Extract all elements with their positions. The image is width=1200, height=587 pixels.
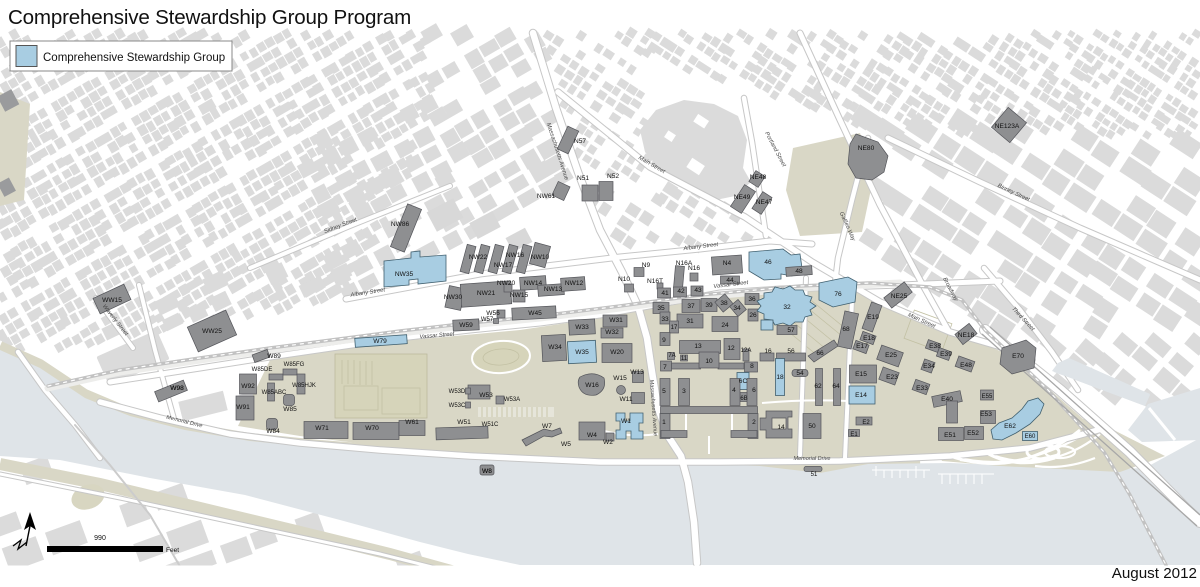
svg-text:37: 37 (687, 303, 695, 310)
svg-text:W4: W4 (587, 432, 597, 439)
svg-text:10: 10 (705, 358, 713, 365)
svg-text:E23: E23 (886, 374, 898, 381)
svg-text:33: 33 (661, 316, 669, 323)
svg-text:W85HJK: W85HJK (292, 383, 316, 389)
svg-text:36: 36 (748, 296, 756, 303)
svg-text:48: 48 (795, 268, 803, 275)
svg-text:Comprehensive Stewardship Grou: Comprehensive Stewardship Group (43, 52, 225, 64)
svg-text:W33: W33 (575, 324, 589, 331)
svg-text:E40: E40 (941, 396, 953, 403)
svg-text:4: 4 (732, 387, 736, 394)
svg-text:W16: W16 (585, 382, 599, 389)
svg-text:N51: N51 (577, 175, 589, 182)
svg-text:Comprehensive Stewardship Grou: Comprehensive Stewardship Group Program (8, 6, 411, 29)
svg-text:W53D: W53D (449, 389, 466, 395)
svg-text:6: 6 (752, 387, 756, 394)
svg-text:N16: N16 (688, 265, 700, 272)
svg-text:E18: E18 (863, 335, 875, 342)
svg-text:W32: W32 (605, 329, 619, 336)
svg-text:N10: N10 (618, 276, 630, 283)
svg-text:50: 50 (808, 423, 816, 430)
svg-text:NW13: NW13 (544, 286, 563, 293)
svg-text:E25: E25 (885, 352, 897, 359)
svg-text:56: 56 (787, 348, 795, 355)
svg-text:64: 64 (832, 383, 840, 390)
svg-text:W15: W15 (613, 375, 627, 382)
svg-text:W79: W79 (373, 338, 387, 345)
svg-text:E33: E33 (916, 385, 928, 392)
svg-text:6B: 6B (740, 396, 747, 402)
svg-text:NE48: NE48 (750, 174, 767, 181)
svg-text:NW17: NW17 (494, 262, 513, 269)
svg-text:31: 31 (686, 318, 694, 325)
svg-text:34: 34 (733, 305, 741, 312)
svg-text:24: 24 (721, 322, 729, 329)
svg-text:NW61: NW61 (537, 193, 556, 200)
svg-text:E38: E38 (929, 343, 941, 350)
svg-text:W35: W35 (575, 349, 589, 356)
svg-text:Feet: Feet (166, 547, 179, 554)
svg-text:W70: W70 (365, 425, 379, 432)
svg-text:W7: W7 (542, 423, 552, 430)
svg-text:E55: E55 (982, 394, 993, 400)
svg-text:Memorial Drive: Memorial Drive (794, 456, 831, 462)
svg-text:W31: W31 (609, 317, 623, 324)
svg-text:12A: 12A (741, 348, 752, 354)
svg-text:W92: W92 (241, 383, 255, 390)
svg-text:W59: W59 (459, 322, 473, 329)
svg-text:NE47: NE47 (756, 199, 773, 206)
svg-text:3: 3 (682, 388, 686, 395)
svg-text:E34: E34 (923, 363, 935, 370)
svg-text:E70: E70 (1012, 353, 1024, 360)
svg-text:W71: W71 (315, 425, 329, 432)
svg-text:N52: N52 (607, 173, 619, 180)
svg-text:August 2012: August 2012 (1112, 565, 1197, 582)
svg-text:W20: W20 (610, 349, 624, 356)
svg-text:38: 38 (720, 300, 728, 307)
svg-text:N9: N9 (642, 262, 651, 269)
svg-text:32: 32 (783, 304, 791, 311)
svg-text:7A: 7A (668, 353, 675, 359)
svg-text:51: 51 (811, 472, 818, 478)
svg-text:E39: E39 (940, 351, 952, 358)
svg-text:NW86: NW86 (391, 221, 410, 228)
svg-text:W2: W2 (603, 439, 613, 446)
svg-text:11: 11 (681, 356, 688, 362)
svg-text:43: 43 (694, 287, 702, 294)
svg-text:E62: E62 (1004, 423, 1016, 430)
svg-text:E1: E1 (850, 432, 858, 438)
svg-text:NW22: NW22 (469, 254, 488, 261)
svg-text:6C: 6C (739, 378, 748, 385)
svg-text:41: 41 (661, 290, 669, 297)
svg-text:NW35: NW35 (395, 271, 414, 278)
svg-text:W85DE: W85DE (252, 367, 273, 373)
svg-text:57: 57 (787, 327, 795, 334)
svg-text:NW10: NW10 (531, 254, 550, 261)
svg-text:N16T: N16T (647, 278, 663, 285)
svg-text:16: 16 (764, 348, 772, 355)
svg-text:46: 46 (764, 259, 772, 266)
svg-text:W5: W5 (561, 441, 571, 448)
svg-text:68: 68 (842, 326, 850, 333)
svg-text:E14: E14 (855, 392, 867, 399)
svg-text:26: 26 (749, 312, 757, 319)
svg-text:2: 2 (752, 419, 756, 426)
svg-text:W53: W53 (479, 392, 493, 399)
svg-text:W98: W98 (170, 385, 184, 392)
svg-text:E2: E2 (862, 420, 870, 426)
svg-text:W91: W91 (236, 404, 250, 411)
svg-text:62: 62 (814, 383, 822, 390)
svg-text:NW15: NW15 (510, 292, 529, 299)
svg-text:1: 1 (662, 419, 666, 426)
svg-text:W56: W56 (486, 310, 500, 317)
svg-text:54: 54 (796, 370, 804, 377)
svg-text:18: 18 (776, 374, 784, 381)
svg-text:NE80: NE80 (858, 145, 875, 152)
svg-text:W89: W89 (267, 353, 281, 360)
svg-text:W53C: W53C (449, 403, 466, 409)
svg-text:E15: E15 (855, 371, 867, 378)
svg-text:5: 5 (662, 388, 666, 395)
svg-text:NW16: NW16 (506, 252, 525, 259)
svg-text:NE49: NE49 (734, 194, 751, 201)
svg-text:8: 8 (750, 363, 754, 370)
svg-text:35: 35 (657, 305, 665, 312)
svg-text:NW12: NW12 (565, 280, 584, 287)
svg-text:W85ABC: W85ABC (262, 390, 287, 396)
svg-text:NW30: NW30 (444, 294, 463, 301)
svg-text:990: 990 (94, 535, 106, 542)
svg-text:NE123A: NE123A (995, 123, 1020, 130)
svg-text:NE18: NE18 (958, 332, 975, 339)
svg-text:W13: W13 (630, 369, 644, 376)
svg-text:W85: W85 (283, 406, 297, 413)
svg-text:E48: E48 (960, 362, 972, 369)
svg-text:W85FG: W85FG (284, 362, 305, 368)
svg-text:9: 9 (662, 337, 666, 344)
svg-text:W34: W34 (548, 344, 562, 351)
svg-text:E53: E53 (980, 411, 992, 418)
svg-text:E51: E51 (944, 432, 956, 439)
svg-text:NW20: NW20 (497, 280, 516, 287)
svg-text:76: 76 (834, 291, 842, 298)
svg-text:13: 13 (694, 343, 702, 350)
svg-text:12: 12 (727, 345, 735, 352)
svg-text:W8: W8 (482, 468, 492, 475)
svg-text:W53A: W53A (504, 397, 520, 403)
svg-text:14: 14 (777, 424, 785, 431)
svg-text:W11: W11 (619, 396, 632, 403)
svg-text:N4: N4 (723, 260, 732, 267)
svg-text:E17: E17 (856, 343, 868, 350)
svg-text:W1: W1 (621, 418, 631, 425)
svg-text:W57: W57 (481, 317, 494, 323)
svg-text:W84: W84 (266, 428, 280, 435)
svg-text:W45: W45 (528, 310, 542, 317)
svg-text:17: 17 (671, 325, 678, 331)
svg-text:NE25: NE25 (891, 293, 908, 300)
svg-text:W51: W51 (457, 419, 471, 426)
svg-text:66: 66 (816, 350, 824, 357)
svg-text:39: 39 (705, 302, 713, 309)
svg-text:42: 42 (677, 288, 685, 295)
svg-text:N57: N57 (574, 138, 586, 145)
svg-text:E19: E19 (867, 314, 879, 321)
svg-text:E60: E60 (1025, 434, 1036, 440)
svg-text:NW21: NW21 (477, 290, 496, 297)
svg-text:W51C: W51C (482, 422, 499, 428)
svg-text:E52: E52 (967, 430, 979, 437)
svg-text:7: 7 (663, 364, 667, 371)
svg-text:NW14: NW14 (524, 280, 543, 287)
svg-text:WW25: WW25 (202, 328, 222, 335)
svg-text:W61: W61 (405, 419, 419, 426)
